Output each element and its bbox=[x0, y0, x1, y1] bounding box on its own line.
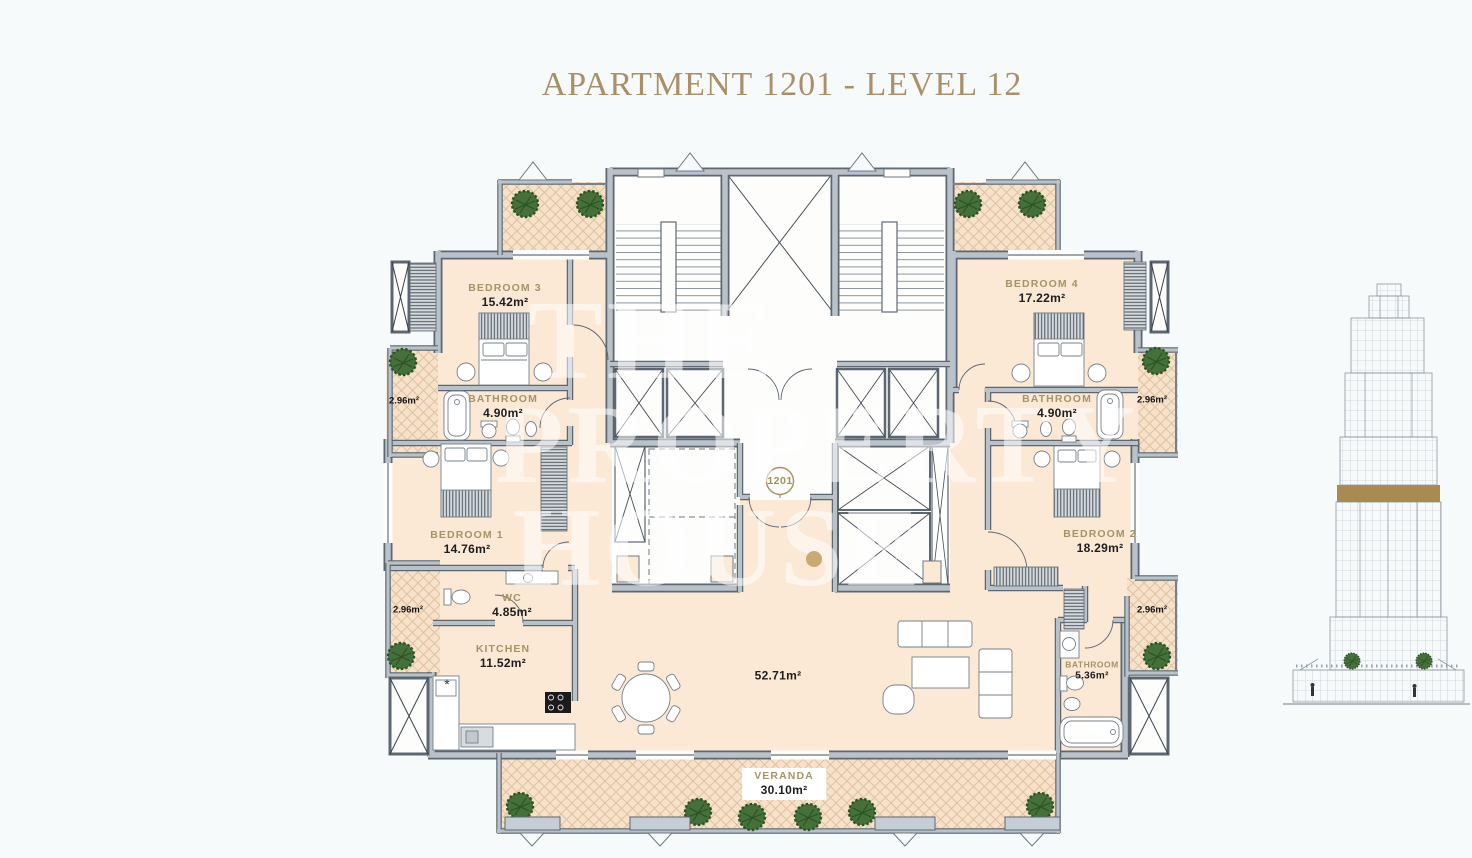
room-name: BEDROOM 3 bbox=[468, 282, 542, 295]
room-label-bedroom4: BEDROOM 4 17.22m² bbox=[1005, 278, 1079, 306]
watermark-dot bbox=[806, 551, 822, 567]
room-name: BEDROOM 4 bbox=[1005, 278, 1079, 291]
room-label-bedroom1: BEDROOM 1 14.76m² bbox=[430, 529, 504, 557]
room-name: KITCHEN bbox=[476, 643, 530, 656]
room-area: 17.22m² bbox=[1005, 291, 1079, 306]
room-area: 11.52m² bbox=[476, 656, 530, 671]
balcony-label-ne: 2.96m² bbox=[1137, 395, 1167, 406]
room-name: BATHROOM bbox=[1065, 659, 1118, 670]
room-name: BATHROOM bbox=[468, 393, 538, 406]
room-label-bedroom2: BEDROOM 2 18.29m² bbox=[1063, 528, 1137, 556]
balcony-label-se: 2.96m² bbox=[1137, 605, 1167, 616]
room-area: 30.10m² bbox=[754, 783, 814, 798]
room-area: 52.71m² bbox=[755, 669, 802, 684]
room-area: 4.85m² bbox=[492, 605, 532, 620]
unit-badge: 1201 bbox=[767, 475, 792, 487]
floor-plan-drawing bbox=[0, 0, 1472, 858]
room-name: BEDROOM 2 bbox=[1063, 528, 1137, 541]
floor-plan-page: APARTMENT 1201 - LEVEL 12 bbox=[0, 0, 1472, 858]
room-area: 15.42m² bbox=[468, 295, 542, 310]
level-12-highlight-band bbox=[1337, 485, 1440, 502]
balcony-label-sw: 2.96m² bbox=[393, 605, 423, 616]
room-area: 4.90m² bbox=[1022, 406, 1092, 421]
room-area: 4.90m² bbox=[468, 406, 538, 421]
room-name: BEDROOM 1 bbox=[430, 529, 504, 542]
kitchen-sink-mark: * bbox=[444, 676, 449, 692]
building-elevation bbox=[1283, 284, 1470, 704]
room-area: 5.36m² bbox=[1065, 670, 1118, 683]
room-label-wc: WC 4.85m² bbox=[492, 592, 532, 620]
room-label-kitchen: KITCHEN 11.52m² bbox=[476, 643, 530, 671]
room-label-bathroom3: BATHROOM 4.90m² bbox=[468, 393, 538, 421]
room-label-living: 52.71m² bbox=[755, 669, 802, 684]
room-area: 18.29m² bbox=[1063, 541, 1137, 556]
room-label-bathroom4: BATHROOM 4.90m² bbox=[1022, 393, 1092, 421]
room-label-bedroom3: BEDROOM 3 15.42m² bbox=[468, 282, 542, 310]
room-name: WC bbox=[492, 592, 532, 605]
room-label-veranda: VERANDA 30.10m² bbox=[742, 768, 826, 800]
room-name: BATHROOM bbox=[1022, 393, 1092, 406]
balcony-label-nw: 2.96m² bbox=[389, 396, 419, 407]
room-area: 14.76m² bbox=[430, 542, 504, 557]
room-label-bathroom2: BATHROOM 5.36m² bbox=[1065, 659, 1118, 682]
room-name: VERANDA bbox=[754, 770, 814, 783]
